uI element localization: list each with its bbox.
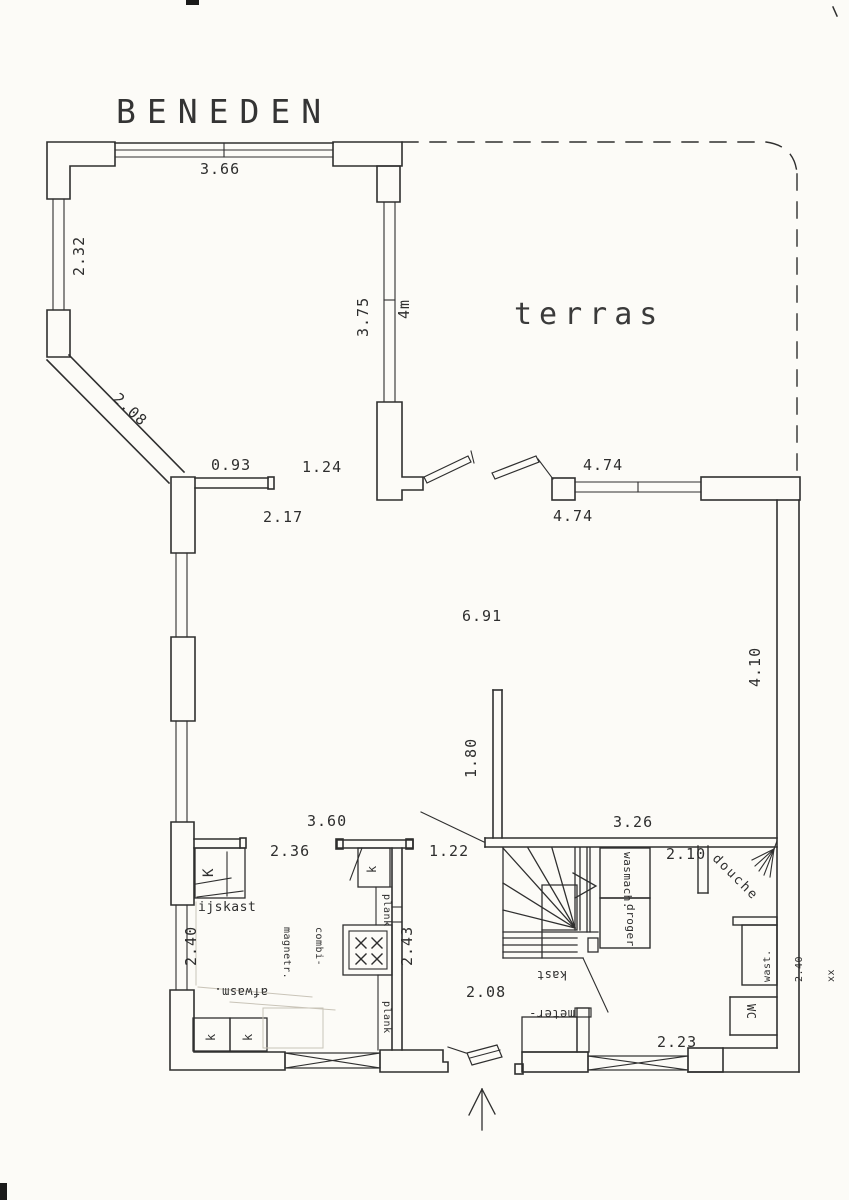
washer-label: wasmach. xyxy=(621,852,633,909)
dim-223: 2.23 xyxy=(657,1034,697,1050)
dim-kitchen-depth: 2.40 xyxy=(183,926,199,966)
west-wall-lower xyxy=(170,477,285,1070)
meter-label-line2: kast xyxy=(529,968,575,981)
fridge-label: ijskast xyxy=(198,901,256,915)
washbasin-label-line1: wast. xyxy=(763,949,774,982)
dim-kitchen-width: 3.60 xyxy=(307,813,347,829)
cabinet-left-k: k xyxy=(205,1033,218,1041)
meter-label-line1: meter- xyxy=(529,1007,575,1020)
shelf-lower-label: plank xyxy=(380,1001,391,1034)
dryer-label: droger xyxy=(624,904,636,947)
dim-217: 2.17 xyxy=(263,509,303,525)
shelf-upper-label: plank xyxy=(380,894,391,927)
washbasin-counter xyxy=(733,917,777,925)
washbasin-label: wast. 2.40 xx xyxy=(741,949,849,982)
microwave-label-line2: magnetr. xyxy=(280,927,291,979)
dim-hall-208: 2.08 xyxy=(466,984,506,1000)
floorplan-page: BENEDEN terras 3.66 2.32 2.08 3.75 4m 0.… xyxy=(0,0,849,1200)
floorplan-drawing xyxy=(0,0,849,1200)
dim-236: 2.36 xyxy=(270,843,310,859)
dim-shower-210: 2.10 xyxy=(666,846,706,862)
dim-window-4m: 4m xyxy=(396,299,412,319)
scan-tick xyxy=(833,7,837,16)
scan-artifacts xyxy=(0,0,199,1200)
dim-474-top: 4.74 xyxy=(583,457,623,473)
west-wall-upper xyxy=(47,199,184,483)
dim-left-upper: 2.32 xyxy=(71,236,87,276)
floor-title: BENEDEN xyxy=(116,94,332,130)
terrace-label: terras xyxy=(514,299,664,331)
dim-room-width: 6.91 xyxy=(462,608,502,624)
dim-spine-wall: 2.43 xyxy=(399,926,415,966)
cooktop xyxy=(343,925,392,975)
door-leaf-b xyxy=(492,456,539,479)
dim-east-wall: 4.10 xyxy=(747,647,763,687)
front-door-leaf xyxy=(467,1045,502,1065)
dim-hall-width: 3.26 xyxy=(613,814,653,830)
dim-top-wall: 3.66 xyxy=(200,161,240,177)
cabinet-top-k: k xyxy=(366,865,379,873)
microwave-label-line1: combi- xyxy=(313,927,324,979)
fridge-k-label: K xyxy=(202,868,217,877)
dim-opening-122: 1.22 xyxy=(429,843,469,859)
meter-cupboard-label: meter- kast xyxy=(529,942,575,1046)
washbasin-label-line2: 2.40 xyxy=(795,949,806,982)
microwave-label: combi- magnetr. xyxy=(259,927,345,979)
dim-opening-124: 1.24 xyxy=(302,459,342,475)
dim-interior-wall: 1.80 xyxy=(463,738,479,778)
east-wall xyxy=(777,500,799,1072)
dishwasher-label: afwasm. xyxy=(214,985,268,998)
dim-window-375: 3.75 xyxy=(355,297,371,337)
dim-stub-wall: 0.93 xyxy=(211,457,251,473)
burner-icons xyxy=(356,938,382,964)
dim-474-bottom: 4.74 xyxy=(553,508,593,524)
wc-label: WC xyxy=(744,1004,757,1019)
door-leaf-a xyxy=(424,456,471,483)
entry-arrow xyxy=(469,1089,495,1130)
washbasin-label-line3: xx xyxy=(827,949,838,982)
cabinet-right-k: k xyxy=(242,1033,255,1041)
